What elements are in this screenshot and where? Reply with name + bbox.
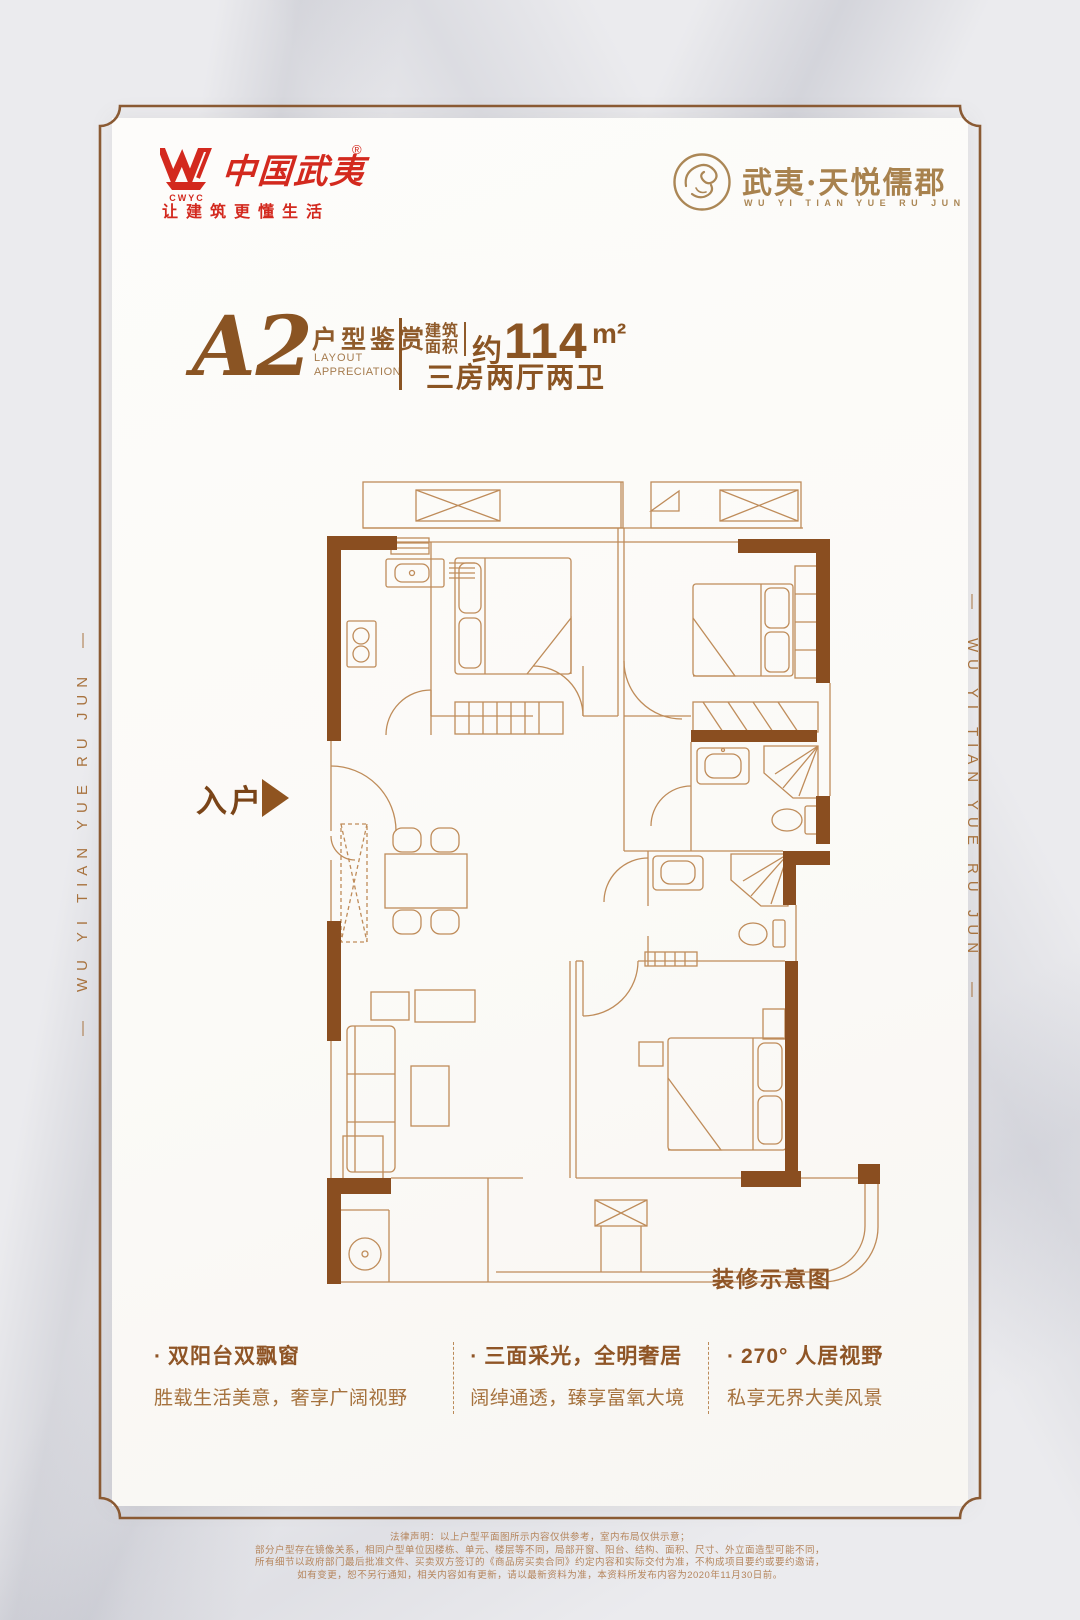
area-label-top: 建筑 (425, 324, 459, 340)
feature-2-desc: 阔绰通透，臻享富氧大境 (470, 1383, 706, 1410)
area-unit: m² (592, 318, 626, 350)
dining-area (385, 828, 467, 934)
area-label-bottom: 面积 (425, 340, 459, 356)
project-cloud-emblem-icon (672, 152, 732, 212)
feature-2-title: 三面采光，全明奢居 (484, 1345, 682, 1368)
master-bedroom (576, 961, 786, 1150)
entry-label: 入户 (196, 776, 264, 821)
living-area (347, 961, 576, 1178)
balcony-top-right (651, 482, 801, 528)
layout-en-line2: APPRECIATION (314, 366, 401, 378)
feature-2: ·三面采光，全明奢居 阔绰通透，臻享富氧大境 (454, 1340, 708, 1414)
project-name-en: WU YI TIAN YUE RU JUN (744, 198, 966, 208)
cwyc-w-logo-icon (160, 148, 212, 192)
balcony-top-left (363, 482, 623, 528)
bullet-icon: · (727, 1345, 735, 1368)
brand-tagline: 让建筑更懂生活 (162, 198, 330, 222)
area-divider (464, 322, 466, 356)
entry-arrow-icon (262, 779, 289, 817)
project-name: 武夷·天悦儒郡 (742, 158, 946, 202)
feature-1-desc: 胜载生活美意，奢享广阔视野 (154, 1383, 451, 1410)
feature-3-title: 270° 人居视野 (741, 1345, 883, 1368)
legal-disclaimer: 法律声明：以上户型平面图所示内容仅供参考，室内布局仅供示意； 部分户型存在镜像关… (0, 1532, 1080, 1582)
legal-line-4: 如有变更，恕不另行通知，相关内容如有更新，请以最新资料为准，本资料所发布内容为2… (0, 1570, 1080, 1583)
bullet-icon: · (470, 1345, 478, 1368)
legal-line-1: 法律声明：以上户型平面图所示内容仅供参考，室内布局仅供示意； (0, 1532, 1080, 1545)
features-row: ·双阳台双飘窗 胜载生活美意，奢享广阔视野 ·三面采光，全明奢居 阔绰通透，臻享… (152, 1340, 942, 1414)
feature-3: ·270° 人居视野 私享无界大美风景 (709, 1340, 942, 1414)
registered-mark: ® (352, 142, 362, 157)
bathroom-1 (651, 742, 818, 851)
layout-appreciation-cn: 户型鉴赏 (312, 320, 428, 356)
bedroom-1 (431, 528, 624, 734)
outer-walls (331, 528, 858, 1282)
bullet-icon: · (154, 1345, 162, 1368)
legal-line-2: 部分户型存在镜像关系，相同户型单位因楼栋、单元、楼层等不同，局部开窗、阳台、结构… (0, 1545, 1080, 1558)
feature-1-title: 双阳台双飘窗 (168, 1345, 300, 1368)
bedroom-2 (624, 566, 818, 732)
plan-caption: 装修示意图 (712, 1262, 832, 1294)
bathroom-2 (604, 851, 788, 966)
kitchen (347, 538, 475, 735)
area-label: 建筑 面积 (425, 324, 459, 356)
rooms-description: 三房两厅两卫 (426, 356, 606, 396)
layout-en-line1: LAYOUT (314, 352, 363, 364)
floor-plan (283, 466, 898, 1286)
unit-code: A2 (192, 306, 313, 388)
feature-1: ·双阳台双飘窗 胜载生活美意，奢享广阔视野 (152, 1340, 453, 1414)
feature-3-desc: 私享无界大美风景 (727, 1383, 940, 1410)
service-balcony (341, 1136, 389, 1282)
title-divider (399, 318, 402, 390)
side-text-left: — WU YI TIAN YUE RU JUN — (72, 596, 93, 1036)
side-text-right: — WU YI TIAN YUE RU JUN — (962, 594, 983, 1038)
legal-line-3: 所有细节以政府部门最后批准文件、买卖双方签订的《商品房买卖合同》约定内容和实际交… (0, 1557, 1080, 1570)
brand-name-calligraphy: 中国武夷 (220, 144, 367, 193)
